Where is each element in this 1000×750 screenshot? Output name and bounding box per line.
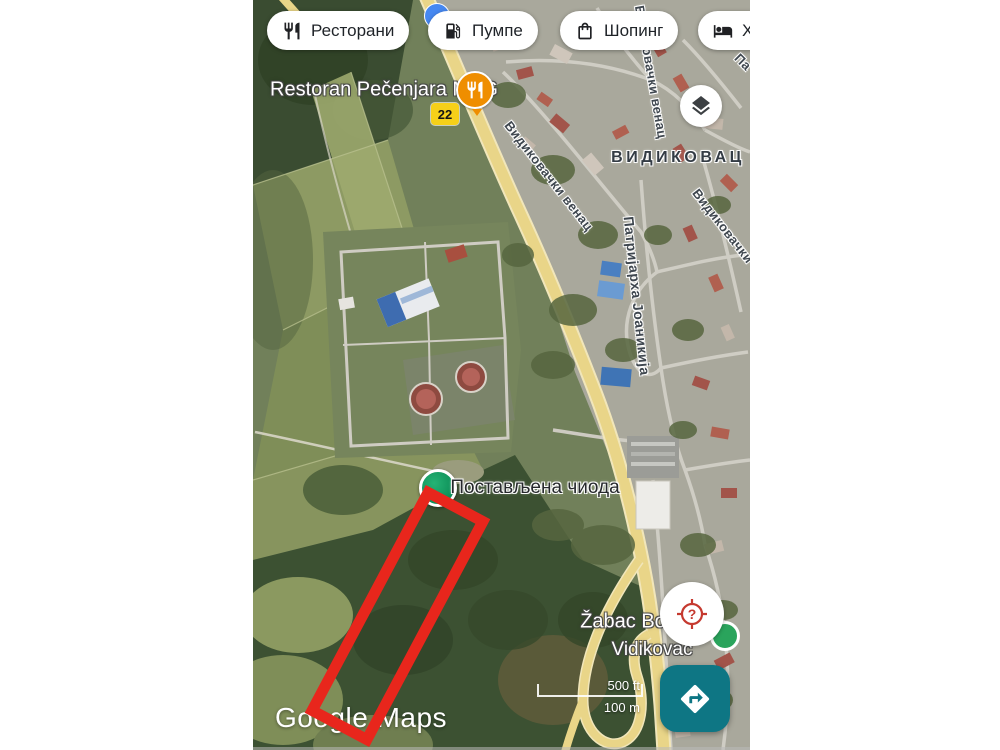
- chip-restaurants[interactable]: Ресторани: [267, 11, 409, 50]
- chip-hotels[interactable]: Х: [698, 11, 750, 50]
- scale-bar: 500 ft 100 m: [537, 684, 643, 697]
- restaurant-poi-icon[interactable]: [456, 71, 494, 109]
- map-viewport[interactable]: Restoran Pečenjara MAG 22 ВИДИКОВАЦ Види…: [253, 0, 750, 750]
- directions-icon: [678, 682, 712, 716]
- layers-icon: [689, 94, 713, 118]
- route-22-badge: 22: [431, 103, 459, 125]
- chip-shopping[interactable]: Шопинг: [560, 11, 678, 50]
- screenshot-root: Restoran Pečenjara MAG 22 ВИДИКОВАЦ Види…: [0, 0, 1000, 750]
- help-question-glyph: ?: [688, 606, 697, 622]
- terrain-facility: [323, 222, 521, 458]
- scale-imperial: 500 ft: [607, 678, 640, 693]
- scale-metric: 100 m: [604, 700, 640, 715]
- restaurant-icon: [282, 21, 302, 41]
- chip-hotels-label: Х: [742, 21, 750, 41]
- fork-knife-icon: [465, 80, 485, 100]
- help-crosshair-button[interactable]: ?: [660, 582, 724, 646]
- shopping-bag-icon: [575, 21, 595, 41]
- chip-gas-stations-label: Пумпе: [472, 21, 523, 41]
- chip-restaurants-label: Ресторани: [311, 21, 394, 41]
- chip-gas-stations[interactable]: Пумпе: [428, 11, 538, 50]
- dropped-pin-label: Постављена чиода: [450, 477, 619, 499]
- gas-pump-icon: [443, 21, 463, 41]
- chip-shopping-label: Шопинг: [604, 21, 663, 41]
- district-label-vidikovac: ВИДИКОВАЦ: [611, 149, 745, 167]
- directions-fab[interactable]: [660, 665, 730, 732]
- hotel-bed-icon: [713, 21, 733, 41]
- layers-button[interactable]: [680, 85, 722, 127]
- poi-pointer: [472, 109, 482, 116]
